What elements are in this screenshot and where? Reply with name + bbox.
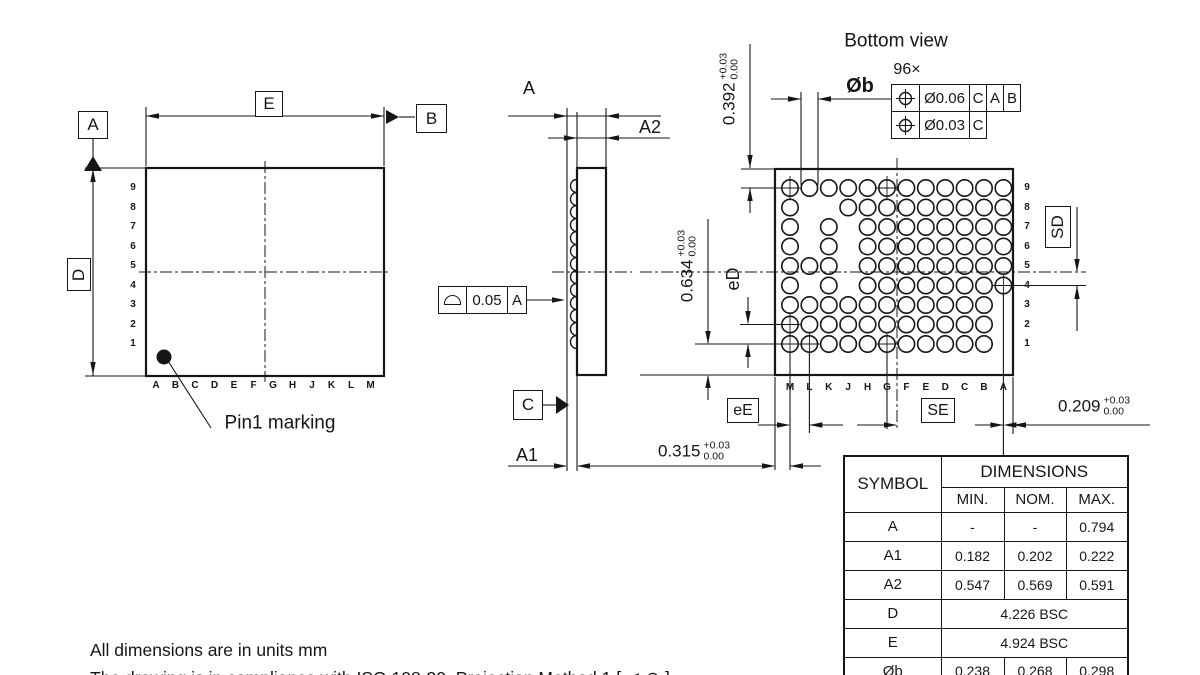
- top-view-row-label: 4: [130, 281, 136, 291]
- bottom-view-col-label: J: [845, 383, 851, 393]
- table-row: A10.1820.2020.222: [844, 541, 1128, 570]
- solder-ball: [937, 316, 953, 332]
- top-view-row-label: 3: [130, 300, 136, 310]
- table-nom-header: NOM.: [1004, 487, 1066, 512]
- package-outline-drawing: A B E D Pin1 marking A A2 A1 C 0.05 A Bo…: [0, 0, 1200, 675]
- dimension-arrow: [809, 422, 822, 427]
- solder-ball: [976, 316, 992, 332]
- top-view-row-label: 8: [130, 203, 136, 213]
- dim-0392: 0.392 +0.030.00: [719, 53, 740, 125]
- solder-ball: [840, 336, 856, 352]
- solder-ball: [840, 199, 856, 215]
- solder-ball: [840, 297, 856, 313]
- solder-ball: [976, 297, 992, 313]
- dimension-arrow: [762, 463, 775, 468]
- table-symbol-cell: E: [844, 628, 941, 657]
- dim-e-box: E: [255, 91, 283, 117]
- dimension-arrow: [90, 362, 95, 375]
- table-min-header: MIN.: [941, 487, 1004, 512]
- top-view-col-label: L: [348, 381, 354, 391]
- pin1-leader: [168, 361, 211, 428]
- position-fcf-1: Ø0.06 C A B: [891, 84, 1021, 112]
- solder-ball: [995, 180, 1011, 196]
- dimensions-table: SYMBOL DIMENSIONS MIN. NOM. MAX. A--0.79…: [843, 455, 1129, 675]
- solder-ball: [879, 199, 895, 215]
- dim-0209-value: 0.209: [1058, 398, 1101, 415]
- solder-ball: [859, 219, 875, 235]
- solder-ball: [879, 277, 895, 293]
- note-projection: The drawing is in compliance with ISO 12…: [90, 668, 670, 675]
- solder-ball: [995, 238, 1011, 254]
- bottom-view-row-label: 9: [1024, 183, 1030, 193]
- dim-0634-tol-plus: +0.03: [677, 230, 688, 257]
- table-symbol-cell: D: [844, 599, 941, 628]
- solder-ball: [859, 297, 875, 313]
- top-view-row-label: 7: [130, 222, 136, 232]
- fcf-tolerance-cell: 0.05: [466, 287, 507, 313]
- top-view-col-label: E: [231, 381, 238, 391]
- solder-ball: [995, 199, 1011, 215]
- solder-ball: [956, 336, 972, 352]
- dimension-arrow: [554, 113, 567, 118]
- solder-ball: [918, 316, 934, 332]
- dimension-arrow: [777, 422, 790, 427]
- dimension-arrow: [788, 96, 801, 101]
- solder-ball: [918, 258, 934, 274]
- bottom-view-col-label: H: [864, 383, 871, 393]
- table-row: Øb0.2380.2680.298: [844, 657, 1128, 675]
- fcf1-value: Ø0.06: [919, 85, 969, 111]
- solder-ball: [782, 238, 798, 254]
- table-nom-value: 0.202: [1004, 541, 1066, 570]
- bottom-view-col-label: F: [903, 383, 909, 393]
- position-symbol-icon: [895, 88, 916, 109]
- sd-box: SD: [1045, 206, 1071, 248]
- dim-0634-value: 0.634: [679, 260, 696, 303]
- dim-0315: 0.315 +0.030.00: [658, 441, 730, 462]
- solder-ball: [859, 316, 875, 332]
- table-max-value: 0.794: [1066, 512, 1128, 541]
- table-span-value: 4.924 BSC: [941, 628, 1128, 657]
- solder-ball: [898, 336, 914, 352]
- table-row: A--0.794: [844, 512, 1128, 541]
- solder-ball: [937, 199, 953, 215]
- solder-ball: [801, 297, 817, 313]
- solder-ball: [918, 336, 934, 352]
- solder-ball: [782, 277, 798, 293]
- top-view-col-label: H: [289, 381, 296, 391]
- solder-ball: [956, 180, 972, 196]
- solder-ball: [937, 297, 953, 313]
- sd-label: SD: [1048, 215, 1068, 239]
- note-units: All dimensions are in units mm: [90, 640, 327, 661]
- solder-ball: [956, 316, 972, 332]
- datum-a-triangle: [84, 156, 102, 171]
- table-row: A20.5470.5690.591: [844, 570, 1128, 599]
- solder-ball: [879, 297, 895, 313]
- solder-ball: [898, 219, 914, 235]
- dim-0392-tol-plus: +0.03: [719, 53, 730, 80]
- top-view-row-label: 1: [130, 339, 136, 349]
- table-min-value: -: [941, 512, 1004, 541]
- dimension-arrow: [146, 113, 159, 118]
- solder-ball: [859, 238, 875, 254]
- position-symbol-cell: [892, 112, 919, 138]
- dimension-arrow: [747, 155, 752, 168]
- bottom-view-row-label: 6: [1024, 242, 1030, 252]
- solder-ball: [801, 180, 817, 196]
- solder-ball: [821, 219, 837, 235]
- bottom-view-col-label: K: [825, 383, 832, 393]
- bottom-view-col-label: B: [980, 383, 987, 393]
- dim-0392-value: 0.392: [721, 83, 738, 126]
- solder-ball: [956, 219, 972, 235]
- solder-ball: [937, 277, 953, 293]
- solder-ball: [898, 180, 914, 196]
- dim-0209: 0.209 +0.030.00: [1058, 396, 1130, 417]
- dimension-arrow: [790, 463, 803, 468]
- solder-ball: [821, 238, 837, 254]
- flatness-fcf: 0.05 A: [438, 286, 527, 314]
- table-min-value: 0.547: [941, 570, 1004, 599]
- solder-ball: [898, 297, 914, 313]
- dim-0209-tol-plus: +0.03: [1103, 396, 1130, 407]
- bottom-view-row-label: 7: [1024, 222, 1030, 232]
- datum-a-flag: A: [78, 111, 108, 139]
- solder-ball: [821, 336, 837, 352]
- dim-a1-label: A1: [516, 446, 538, 464]
- fcf2-datum-c: C: [969, 112, 986, 138]
- dim-a2-label: A2: [639, 118, 661, 136]
- dim-0315-tol-minus: 0.00: [703, 451, 730, 462]
- dim-0392-tol-minus: 0.00: [729, 53, 740, 80]
- dimension-arrow: [818, 96, 831, 101]
- table-symbol-cell: A: [844, 512, 941, 541]
- dimension-arrow: [1003, 422, 1016, 427]
- solder-ball: [821, 180, 837, 196]
- dimension-arrow: [371, 113, 384, 118]
- solder-ball: [956, 277, 972, 293]
- pitch-d-label: eD: [724, 267, 742, 290]
- bottom-view-col-label: M: [786, 383, 794, 393]
- solder-ball: [898, 238, 914, 254]
- pin1-marking-label: Pin1 marking: [225, 414, 336, 433]
- table-span-value: 4.226 BSC: [941, 599, 1128, 628]
- table-min-value: 0.182: [941, 541, 1004, 570]
- ball-diameter-label: Øb: [846, 76, 874, 96]
- solder-ball: [937, 180, 953, 196]
- profile-symbol-cell: [439, 287, 466, 313]
- dimension-arrow: [745, 344, 750, 357]
- dim-0209-tol-minus: 0.00: [1103, 406, 1130, 417]
- dimension-arrow: [990, 422, 1003, 427]
- dimension-arrow: [1074, 286, 1079, 299]
- top-view-col-label: K: [328, 381, 335, 391]
- datum-b-triangle: [386, 110, 399, 124]
- dim-e-label: E: [263, 94, 274, 114]
- top-view-row-label: 5: [130, 261, 136, 271]
- dim-0315-value: 0.315: [658, 443, 701, 460]
- solder-ball: [976, 277, 992, 293]
- solder-ball: [937, 336, 953, 352]
- pitch-e-label: eE: [733, 402, 753, 420]
- solder-ball: [898, 277, 914, 293]
- bottom-view-row-label: 5: [1024, 261, 1030, 271]
- datum-b-label: B: [426, 109, 437, 129]
- solder-ball: [782, 219, 798, 235]
- dimension-arrow: [606, 135, 619, 140]
- solder-ball: [782, 297, 798, 313]
- dimension-arrow: [606, 113, 619, 118]
- bottom-view-row-label: 2: [1024, 320, 1030, 330]
- table-max-header: MAX.: [1066, 487, 1128, 512]
- table-symbol-cell: Øb: [844, 657, 941, 675]
- dim-d-label: D: [69, 268, 89, 280]
- table-max-value: 0.222: [1066, 541, 1128, 570]
- solder-ball: [821, 277, 837, 293]
- table-symbol-header: SYMBOL: [844, 456, 941, 512]
- bottom-view-col-label: G: [883, 383, 891, 393]
- table-row: D4.226 BSC: [844, 599, 1128, 628]
- top-view-col-label: D: [211, 381, 218, 391]
- solder-ball: [898, 199, 914, 215]
- bottom-view-col-label: A: [1000, 383, 1007, 393]
- solder-ball: [956, 297, 972, 313]
- solder-ball: [898, 316, 914, 332]
- solder-ball: [840, 180, 856, 196]
- dim-d-box: D: [67, 258, 91, 291]
- solder-ball: [859, 180, 875, 196]
- solder-ball: [976, 219, 992, 235]
- ball-count-label: 96×: [893, 62, 920, 78]
- top-view-col-label: J: [309, 381, 315, 391]
- solder-ball: [937, 238, 953, 254]
- solder-ball: [918, 219, 934, 235]
- dimension-arrow: [705, 375, 710, 388]
- bottom-view-col-label: L: [806, 383, 812, 393]
- dim-0634: 0.634 +0.030.00: [677, 230, 698, 302]
- dimension-arrow: [884, 422, 897, 427]
- top-view-row-label: 2: [130, 320, 136, 330]
- solder-ball: [956, 199, 972, 215]
- se-box: SE: [921, 398, 955, 423]
- solder-ball: [859, 199, 875, 215]
- solder-ball: [918, 180, 934, 196]
- solder-ball: [879, 219, 895, 235]
- solder-ball: [918, 199, 934, 215]
- solder-ball: [859, 277, 875, 293]
- bottom-view-row-label: 3: [1024, 300, 1030, 310]
- datum-a-label: A: [87, 115, 98, 135]
- bottom-view-col-label: D: [942, 383, 949, 393]
- dim-0315-tol-plus: +0.03: [703, 441, 730, 452]
- dimension-arrow: [552, 297, 565, 302]
- solder-ball: [821, 297, 837, 313]
- top-view-row-label: 9: [130, 183, 136, 193]
- solder-ball: [782, 199, 798, 215]
- table-max-value: 0.298: [1066, 657, 1128, 675]
- profile-of-surface-icon: [444, 295, 461, 305]
- bottom-view-title: Bottom view: [844, 32, 947, 51]
- solder-ball: [840, 316, 856, 332]
- dimension-arrow: [554, 463, 567, 468]
- solder-ball: [801, 316, 817, 332]
- bottom-view-col-label: E: [922, 383, 929, 393]
- solder-ball: [937, 219, 953, 235]
- solder-ball: [976, 238, 992, 254]
- dimension-arrow: [1074, 259, 1079, 272]
- top-view-col-label: F: [250, 381, 256, 391]
- solder-ball: [821, 316, 837, 332]
- position-fcf-2: Ø0.03 C: [891, 111, 987, 139]
- table-nom-value: -: [1004, 512, 1066, 541]
- table-nom-value: 0.268: [1004, 657, 1066, 675]
- dimension-arrow: [747, 188, 752, 201]
- bottom-view-row-label: 1: [1024, 339, 1030, 349]
- pitch-e-box: eE: [727, 398, 759, 423]
- datum-c-flag: C: [513, 390, 543, 420]
- dimension-arrow: [564, 135, 577, 140]
- solder-ball: [879, 238, 895, 254]
- solder-ball: [879, 316, 895, 332]
- solder-ball: [918, 277, 934, 293]
- dim-0634-tol-minus: 0.00: [687, 230, 698, 257]
- position-symbol-icon: [895, 115, 916, 136]
- bottom-view-row-label: 8: [1024, 203, 1030, 213]
- datum-b-flag: B: [416, 104, 447, 133]
- se-label: SE: [927, 402, 948, 420]
- fcf1-datum-c: C: [969, 85, 986, 111]
- solder-ball: [976, 180, 992, 196]
- top-view-col-label: B: [172, 381, 179, 391]
- table-nom-value: 0.569: [1004, 570, 1066, 599]
- solder-ball: [995, 219, 1011, 235]
- table-max-value: 0.591: [1066, 570, 1128, 599]
- dim-a-label: A: [523, 79, 535, 97]
- solder-ball: [918, 297, 934, 313]
- top-view-col-label: G: [269, 381, 277, 391]
- bottom-view-row-label: 4: [1024, 281, 1030, 291]
- top-view-col-label: M: [366, 381, 374, 391]
- fcf-datum-cell: A: [507, 287, 526, 313]
- top-view-col-label: A: [152, 381, 159, 391]
- table-dimensions-header: DIMENSIONS: [941, 456, 1128, 487]
- fcf2-value: Ø0.03: [919, 112, 969, 138]
- table-symbol-cell: A2: [844, 570, 941, 599]
- solder-ball: [976, 199, 992, 215]
- solder-ball: [898, 258, 914, 274]
- dimension-arrow: [745, 311, 750, 324]
- solder-ball: [821, 258, 837, 274]
- fcf1-datum-a: A: [986, 85, 1003, 111]
- fcf1-datum-b: B: [1003, 85, 1020, 111]
- solder-ball: [918, 238, 934, 254]
- top-view-col-label: C: [191, 381, 198, 391]
- table-row: E4.924 BSC: [844, 628, 1128, 657]
- table-symbol-cell: A1: [844, 541, 941, 570]
- solder-ball: [956, 238, 972, 254]
- dimension-arrow: [577, 463, 590, 468]
- datum-c-label: C: [522, 395, 534, 415]
- top-view-row-label: 6: [130, 242, 136, 252]
- bottom-view-col-label: C: [961, 383, 968, 393]
- solder-ball: [976, 336, 992, 352]
- solder-ball: [859, 336, 875, 352]
- position-symbol-cell: [892, 85, 919, 111]
- dimension-arrow: [705, 331, 710, 344]
- table-min-value: 0.238: [941, 657, 1004, 675]
